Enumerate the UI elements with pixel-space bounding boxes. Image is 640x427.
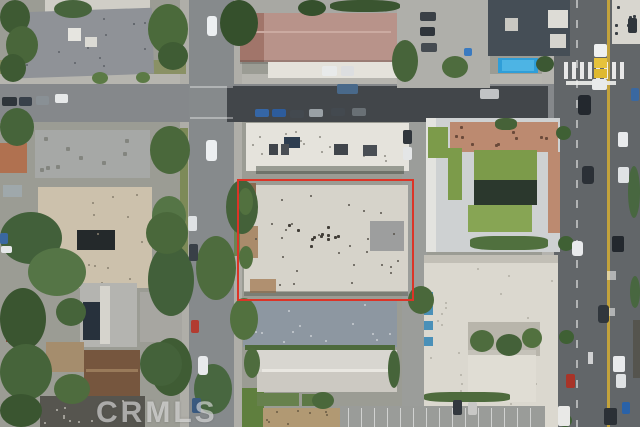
car-parked-west-4 <box>55 94 68 103</box>
car-moving-silver <box>480 89 499 99</box>
car-alley-dark <box>403 130 412 144</box>
car-parked-west-1 <box>2 97 17 106</box>
tree-15 <box>150 126 190 174</box>
tree-35 <box>628 166 640 218</box>
truck-blvd-white <box>558 406 570 426</box>
tree-11 <box>536 56 554 72</box>
bottomright-complex-north-edge <box>424 255 558 263</box>
car-darklot-2 <box>272 109 286 117</box>
crosswalk-line-south <box>190 117 233 119</box>
property-red-outline <box>237 179 414 301</box>
gray-shed <box>3 185 22 197</box>
tan-building-vents <box>266 410 338 426</box>
tree-17 <box>148 244 194 316</box>
tree-31 <box>54 374 90 404</box>
truck-crosswalk-trailer <box>592 79 607 90</box>
dark-building-roof-unit-3 <box>505 18 518 31</box>
car-streetA-north-white <box>207 16 217 36</box>
greenroof-turf-2 <box>448 148 462 200</box>
tree-4 <box>54 0 92 18</box>
car-darklot-5 <box>331 108 345 116</box>
tree-18 <box>196 236 236 300</box>
blvd-east-dark-frontage <box>633 320 640 378</box>
car-blvd-top-dark <box>628 18 637 33</box>
tree-24 <box>230 298 258 340</box>
tree-7 <box>220 0 258 46</box>
tree-28 <box>0 288 46 350</box>
tree-10 <box>442 56 468 78</box>
gable-house-roof <box>84 350 140 396</box>
car-leftedge-blue <box>0 233 8 244</box>
car-storefront-1 <box>322 66 337 76</box>
crosswalk-line-north <box>190 86 233 88</box>
north-building-shadow <box>256 166 404 174</box>
south-building-specks <box>248 304 393 344</box>
blue-awning-3 <box>424 321 433 330</box>
car-streetA-white <box>206 140 217 161</box>
car-streetA-white-2 <box>198 356 208 375</box>
car-parked-A-red <box>191 320 199 333</box>
lane-text-1 <box>607 271 616 280</box>
car-blvd-parked-white-4 <box>616 374 626 388</box>
truck-moving-blue <box>337 84 358 94</box>
car-darklot-6 <box>352 108 366 116</box>
palm-1 <box>556 126 571 140</box>
tree-33 <box>56 298 86 326</box>
greenroof-hedge-south <box>470 236 548 250</box>
grass-patch-1 <box>257 393 299 406</box>
car-lot-top-3 <box>421 43 437 52</box>
solar-house-ridge <box>100 286 110 344</box>
tree-34 <box>146 212 188 254</box>
dark-building-roof-unit-1 <box>548 10 568 28</box>
truck-crosswalk-yellow-1 <box>594 58 607 68</box>
car-blvd-dark-1 <box>578 95 591 115</box>
accessible-parking-icon <box>464 48 472 56</box>
hedge-west-of-hip-building <box>244 348 260 378</box>
car-parked-west-3 <box>36 96 49 105</box>
car-leftedge-white <box>1 246 12 253</box>
turn-arrow <box>588 352 593 364</box>
car-storefront-2 <box>341 66 354 76</box>
orange-roof-house <box>0 143 27 173</box>
parking-stall-lines <box>348 408 538 427</box>
aerial-photo: CRMLS <box>0 0 640 427</box>
car-blvd-white-1 <box>572 241 583 256</box>
tree-6 <box>158 42 188 70</box>
courtyard-tree-3 <box>522 328 542 348</box>
car-parked-A-2 <box>189 244 198 261</box>
car-lot-top-1 <box>420 12 436 21</box>
tree-37 <box>312 392 334 409</box>
car-lot-top-2 <box>420 27 435 36</box>
car-blvd-dark-3 <box>598 305 609 323</box>
hedge-top-center <box>330 0 400 12</box>
tree-8 <box>298 0 326 16</box>
courtyard-tree-1 <box>470 330 494 352</box>
tree-30 <box>0 394 42 427</box>
pink-building-ridge <box>246 31 391 33</box>
car-parking-bottom-1 <box>453 400 462 415</box>
car-blvd-top-blue <box>631 88 639 101</box>
palm-3 <box>559 330 574 344</box>
courtyard-tree-2 <box>496 334 522 356</box>
white-hip-ridge <box>262 369 392 372</box>
complex-hedge-south <box>424 392 510 402</box>
car-blvd-parked-white-2 <box>618 167 629 183</box>
greenroof-turf-3 <box>474 150 537 180</box>
midleft-building-north-stains <box>40 134 145 174</box>
car-parking-bottom-2 <box>468 402 477 415</box>
rooftop-pool-water <box>502 60 534 71</box>
tree-14 <box>0 108 34 146</box>
car-blvd-parked-dark <box>612 236 624 252</box>
truck-crosswalk-yellow-2 <box>594 69 607 78</box>
greenroof-hedge-north <box>495 118 517 130</box>
tree-9 <box>392 40 418 82</box>
tree-13 <box>136 72 150 83</box>
tree-12 <box>92 72 108 84</box>
car-parked-west-2 <box>19 97 32 106</box>
greenroof-courtyard <box>474 180 537 205</box>
tree-3 <box>0 54 26 82</box>
north-building-ac-4 <box>363 145 377 156</box>
north-building-ac-3 <box>334 144 348 155</box>
car-alley-white <box>403 147 412 160</box>
crmls-watermark: CRMLS <box>96 396 218 427</box>
apartment-topleft-vents <box>26 14 148 70</box>
greenroof-turf-4 <box>468 205 532 232</box>
hedge-east-of-hip-building <box>388 350 400 388</box>
car-darklot-1 <box>255 109 269 117</box>
car-darklot-3 <box>290 110 304 118</box>
tree-36 <box>630 276 640 308</box>
greenroof-brick-east <box>548 152 560 233</box>
greenroof-turf-1 <box>428 127 448 158</box>
dark-building-roof-unit-2 <box>550 34 566 48</box>
car-blvd-parked-white-3 <box>613 356 625 372</box>
north-building-ac-2 <box>281 144 289 155</box>
car-parked-A-1 <box>188 216 197 231</box>
car-blvd-blue <box>622 402 630 414</box>
gable-house-ridge <box>86 369 138 372</box>
tree-27 <box>28 248 86 296</box>
tree-29 <box>0 344 52 400</box>
blue-awning-4 <box>424 337 433 346</box>
car-blvd-parked-white-1 <box>618 132 628 147</box>
white-hip-south-slope <box>257 372 397 392</box>
truck-crosswalk-cab <box>594 44 607 57</box>
car-darklot-4 <box>309 109 323 117</box>
car-blvd-dark-2 <box>582 166 594 184</box>
car-blvd-parked-dark-2 <box>604 408 617 425</box>
stop-bar <box>566 81 616 85</box>
car-blvd-red <box>566 374 575 388</box>
tree-32 <box>140 342 182 386</box>
north-building-ac-1 <box>269 144 278 155</box>
